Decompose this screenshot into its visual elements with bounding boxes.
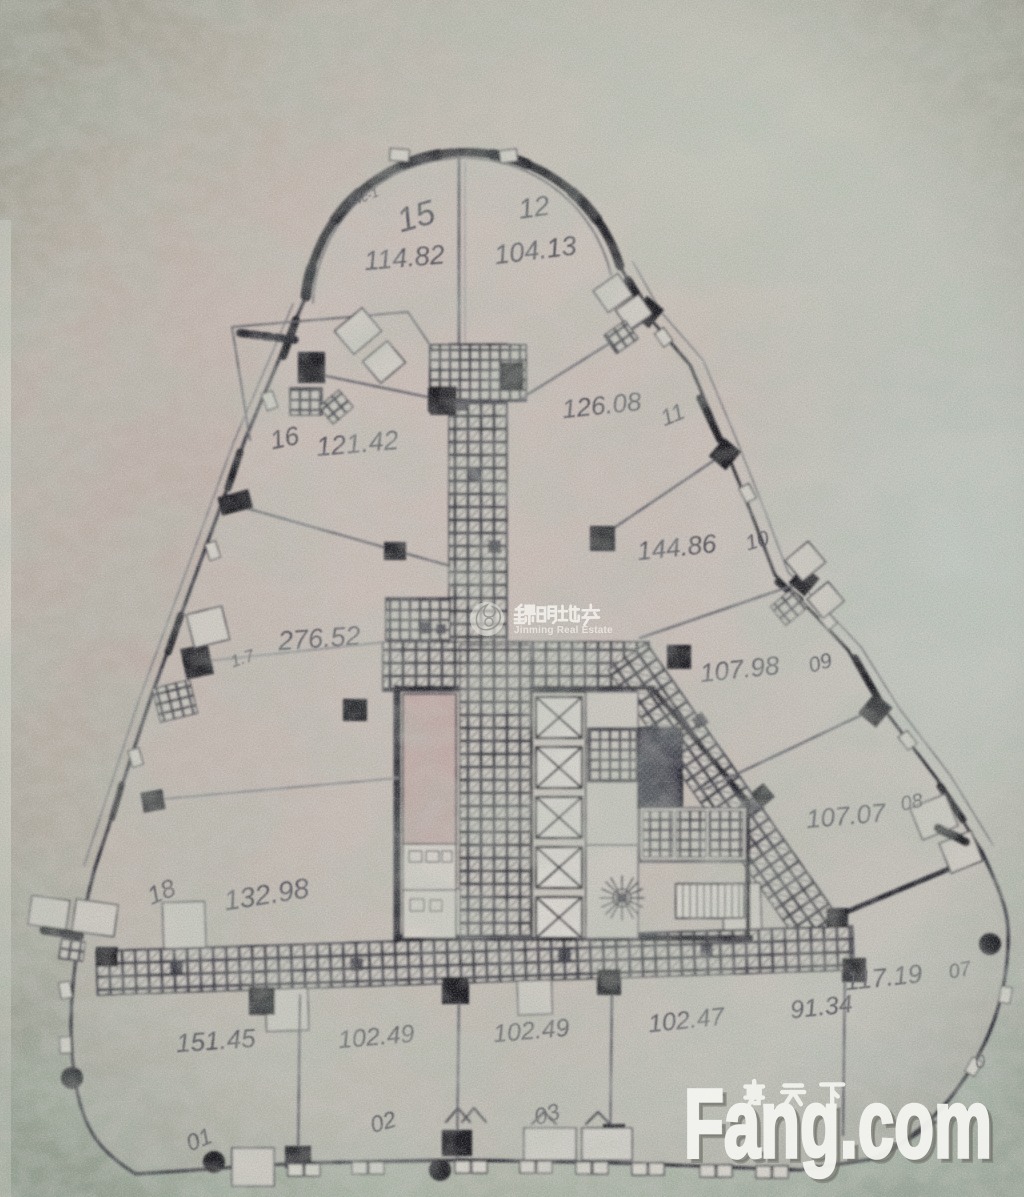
svg-text:Jinming Real Estate: Jinming Real Estate (514, 625, 613, 636)
svg-text:Fang.com: Fang.com (684, 1069, 992, 1178)
